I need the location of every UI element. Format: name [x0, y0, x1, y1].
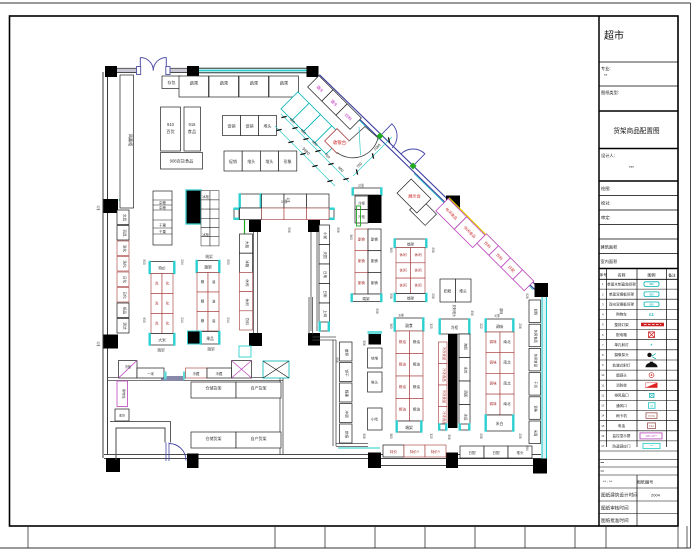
svg-text:100 10**: 100 10**	[645, 434, 657, 438]
svg-text:南北: 南北	[503, 360, 511, 365]
svg-text:特价: 特价	[390, 449, 398, 454]
svg-text:米白: 米白	[496, 421, 504, 426]
svg-text:干果: 干果	[159, 229, 166, 234]
svg-text:284: 284	[525, 445, 529, 451]
svg-text:冰柜: 冰柜	[202, 194, 209, 199]
svg-text:休闲: 休闲	[414, 283, 422, 288]
svg-text:副食: 副食	[358, 237, 366, 242]
svg-text:化: 化	[166, 321, 170, 326]
svg-text:洗化: 洗化	[123, 245, 128, 253]
svg-text:306: 306	[447, 434, 451, 440]
svg-text:***: ***	[629, 165, 634, 170]
svg-text:专业:: 专业:	[601, 65, 611, 72]
svg-text:粮油: 粮油	[413, 407, 421, 412]
svg-text:油: 油	[212, 279, 216, 284]
svg-text:副食: 副食	[358, 280, 366, 285]
svg-text:南北: 南北	[503, 401, 511, 406]
svg-text:冷冻食品: 冷冻食品	[442, 368, 447, 382]
svg-text:214: 214	[226, 317, 230, 323]
svg-text:杂粮: 杂粮	[159, 205, 166, 210]
svg-text:端架: 端架	[157, 348, 165, 353]
svg-text:副食: 副食	[405, 323, 413, 328]
svg-text:形象: 形象	[284, 158, 292, 164]
svg-text:展示台: 展示台	[408, 193, 421, 200]
svg-text:特价: 特价	[158, 266, 166, 271]
svg-text:休闲食品: 休闲食品	[534, 330, 539, 344]
svg-text:206: 206	[518, 323, 522, 329]
svg-text:206: 206	[518, 433, 522, 439]
svg-text:调味: 调味	[489, 360, 497, 365]
svg-text:端架: 端架	[407, 296, 415, 301]
svg-text:单面双搁板货架: 单面双搁板货架	[609, 292, 635, 297]
svg-text:图例: 图例	[648, 272, 656, 278]
svg-text:900: 900	[226, 259, 230, 265]
svg-text:910: 910	[167, 122, 175, 127]
svg-text:洗化: 洗化	[123, 260, 128, 268]
svg-text:绘图:: 绘图:	[601, 185, 611, 192]
svg-text:购物车: 购物车	[122, 389, 127, 399]
svg-text:消防栓: 消防栓	[616, 383, 627, 388]
svg-text:蔬果: 蔬果	[250, 80, 259, 87]
svg-text:小家: 小家	[323, 232, 328, 240]
svg-text:小吃: 小吃	[371, 417, 379, 422]
svg-text:收货: 收货	[119, 413, 125, 418]
svg-text:306: 306	[362, 340, 366, 346]
svg-text:** : **: ** : **	[603, 480, 613, 484]
svg-text:大姐: 大姐	[245, 241, 250, 249]
svg-text:超市: 超市	[604, 29, 624, 42]
svg-text:214: 214	[180, 317, 184, 323]
svg-text:900: 900	[142, 317, 146, 323]
svg-text:206: 206	[431, 247, 435, 253]
svg-text:汤圆: 汤圆	[464, 390, 469, 397]
svg-text:杂粮: 杂粮	[159, 200, 166, 205]
svg-text:洗: 洗	[155, 301, 159, 306]
svg-text:米面: 米面	[534, 430, 539, 437]
svg-text:908百货食品: 908百货食品	[170, 158, 194, 165]
svg-text:10: 10	[601, 373, 605, 377]
svg-text:休闲: 休闲	[399, 267, 407, 272]
svg-text:TEL: TEL	[649, 424, 655, 428]
svg-text:蔬果: 蔬果	[220, 80, 229, 87]
svg-text:轨道式射灯: 轨道式射灯	[613, 362, 631, 367]
svg-text:粮油: 粮油	[399, 339, 407, 344]
svg-text:促销: 促销	[229, 158, 237, 164]
svg-text:££: ££	[649, 312, 655, 317]
svg-text:单面木制直角货架: 单面木制直角货架	[607, 281, 636, 286]
svg-text:配电箱: 配电箱	[616, 332, 627, 337]
svg-text:360: 360	[349, 234, 353, 240]
svg-text:906: 906	[336, 227, 340, 233]
svg-text:206: 206	[431, 293, 435, 299]
svg-text:222: 222	[479, 323, 483, 329]
svg-text:休闲: 休闲	[245, 299, 250, 307]
svg-text:冰品: 冰品	[464, 414, 469, 421]
svg-text:900: 900	[649, 282, 654, 286]
svg-text:化: 化	[166, 301, 170, 306]
svg-text:图纸建筑设计时间: 图纸建筑设计时间	[601, 492, 638, 499]
svg-text:烟感头: 烟感头	[616, 372, 627, 377]
svg-text:洗: 洗	[155, 281, 159, 286]
svg-text:306: 306	[362, 433, 366, 439]
svg-text:仓储货架: 仓储货架	[206, 435, 222, 441]
svg-text:图纸类型:: 图纸类型:	[601, 89, 619, 96]
svg-text:冷冻食品: 冷冻食品	[442, 411, 447, 425]
svg-text:百货: 百货	[166, 128, 174, 135]
svg-text:2排: 2排	[96, 206, 101, 212]
svg-text:饮料: 饮料	[245, 318, 250, 326]
svg-text:休闲: 休闲	[399, 252, 407, 257]
svg-text:粮: 粮	[201, 279, 205, 284]
svg-text:干货: 干货	[534, 381, 539, 388]
svg-text:日用: 日用	[323, 290, 328, 298]
svg-text:促销: 促销	[246, 123, 254, 129]
svg-text:冷柜: 冷柜	[125, 364, 132, 369]
svg-text:926: 926	[525, 293, 529, 299]
svg-text:副食: 副食	[371, 258, 379, 263]
svg-text:堆头: 堆头	[459, 289, 467, 294]
svg-text:堆头: 堆头	[247, 158, 255, 164]
svg-text:上网: 上网	[323, 310, 328, 318]
svg-text:果品: 果品	[206, 336, 214, 341]
svg-text:900: 900	[649, 292, 654, 296]
svg-text:图纸审核时间: 图纸审核时间	[601, 505, 629, 512]
svg-text:✶: ✶	[650, 343, 653, 347]
svg-text:大米: 大米	[158, 338, 166, 343]
svg-text:地堆: 地堆	[371, 356, 379, 361]
svg-text:图纸编号: 图纸编号	[637, 479, 654, 486]
svg-text:排风扇口: 排风扇口	[614, 393, 629, 398]
svg-text:特价Y: 特价Y	[431, 449, 441, 454]
svg-text:图纸批准时间: 图纸批准时间	[601, 517, 629, 524]
svg-text:干果: 干果	[159, 223, 166, 228]
svg-text:一米: 一米	[147, 371, 154, 376]
svg-text:副食: 副食	[371, 237, 379, 242]
svg-text:1排: 1排	[286, 198, 291, 204]
svg-text:3排: 3排	[398, 313, 404, 318]
svg-text:日化: 日化	[123, 291, 128, 299]
svg-text:14: 14	[601, 414, 605, 418]
svg-text:325: 325	[429, 323, 433, 329]
svg-text:日配: 日配	[492, 450, 500, 455]
svg-text:906: 906	[389, 293, 393, 299]
svg-text:堆头: 堆头	[264, 123, 272, 129]
svg-text:端架: 端架	[362, 296, 370, 301]
svg-text:17: 17	[601, 444, 605, 448]
svg-text:名称: 名称	[618, 272, 626, 278]
svg-text:休闲: 休闲	[414, 267, 422, 272]
svg-text:12: 12	[601, 394, 605, 398]
svg-text:玩具: 玩具	[123, 229, 128, 237]
svg-text:单孔射灯: 单孔射灯	[614, 342, 629, 347]
svg-text:监控显示屏: 监控显示屏	[613, 433, 631, 438]
svg-text:冷藏: 冷藏	[193, 371, 200, 376]
svg-text:休闲: 休闲	[414, 252, 422, 257]
svg-text:调味: 调味	[496, 324, 504, 329]
svg-text:调味: 调味	[534, 406, 539, 413]
svg-text:冷柜: 冷柜	[358, 214, 365, 219]
svg-text:堆头: 堆头	[516, 450, 524, 455]
svg-text:水饺: 水饺	[464, 367, 469, 374]
svg-text:清洁: 清洁	[123, 322, 128, 330]
svg-text:蔬果: 蔬果	[190, 80, 199, 87]
svg-text:端架: 端架	[405, 425, 413, 430]
svg-text:货架商品配置图: 货架商品配置图	[613, 126, 660, 135]
svg-text:洗: 洗	[155, 321, 159, 326]
svg-text:食品: 食品	[188, 128, 196, 135]
svg-text:906: 906	[335, 357, 339, 363]
svg-text:906: 906	[287, 227, 291, 233]
svg-text:奶粉: 奶粉	[534, 309, 539, 316]
svg-text:化: 化	[166, 281, 170, 286]
svg-text:234: 234	[180, 259, 184, 265]
svg-text:通风口: 通风口	[616, 403, 627, 408]
svg-text:奶粉堆头: 奶粉堆头	[452, 305, 457, 319]
svg-text:206: 206	[479, 433, 483, 439]
svg-text:自产货架: 自产货架	[251, 385, 267, 391]
svg-text:副食: 副食	[371, 280, 379, 285]
svg-text:冰箱: 冰箱	[245, 260, 250, 268]
svg-text:休闲: 休闲	[399, 283, 407, 288]
svg-text:仓储货架: 仓储货架	[206, 385, 222, 391]
svg-text:冷冻食品: 冷冻食品	[442, 347, 447, 361]
svg-text:天国: 天国	[323, 251, 328, 259]
svg-text:刷卡机: 刷卡机	[616, 413, 627, 418]
svg-text:纸品: 纸品	[123, 307, 128, 315]
svg-text:烘焙: 烘焙	[345, 431, 350, 439]
svg-text:电话: 电话	[618, 423, 626, 428]
svg-text:粮油: 粮油	[413, 384, 421, 389]
svg-text:文具: 文具	[123, 214, 128, 222]
svg-text:900: 900	[142, 259, 146, 265]
svg-text:堆头: 堆头	[371, 380, 379, 385]
svg-text:备注: 备注	[668, 273, 676, 278]
svg-text:存包: 存包	[168, 79, 176, 85]
svg-text:购物车: 购物车	[616, 312, 627, 317]
svg-text:粮油: 粮油	[399, 362, 407, 367]
svg-text:油: 油	[212, 318, 216, 323]
svg-text:端架: 端架	[407, 242, 415, 247]
svg-text:饼干: 饼干	[345, 369, 350, 377]
svg-text:室内面积: 室内面积	[601, 258, 618, 265]
svg-text:360: 360	[389, 247, 393, 253]
svg-text:冷藏: 冷藏	[216, 371, 223, 376]
svg-text:端架: 端架	[207, 347, 215, 352]
svg-text:**: **	[604, 73, 608, 78]
svg-text:16: 16	[601, 434, 605, 438]
svg-text:促销: 促销	[228, 123, 236, 129]
svg-text:325: 325	[429, 433, 433, 439]
svg-text:风幕柜: 风幕柜	[127, 134, 134, 147]
svg-text:摄像探头: 摄像探头	[614, 352, 629, 357]
svg-text:906: 906	[375, 308, 379, 314]
svg-text:收银台: 收银台	[333, 139, 347, 146]
svg-text:冰柜: 冰柜	[202, 232, 209, 237]
svg-text:散称: 散称	[345, 349, 350, 357]
svg-text:2排: 2排	[358, 183, 364, 188]
svg-text:900: 900	[649, 302, 654, 306]
svg-text:建筑面积: 建筑面积	[601, 244, 618, 251]
svg-text:特价Y: 特价Y	[410, 449, 420, 454]
svg-text:13: 13	[601, 404, 605, 408]
svg-text:休闲: 休闲	[245, 279, 250, 287]
svg-text:日化: 日化	[123, 276, 128, 284]
svg-text:端架: 端架	[205, 254, 213, 259]
svg-text:日配: 日配	[468, 450, 476, 455]
svg-text:冷冻食品: 冷冻食品	[442, 390, 447, 404]
svg-text:调味: 调味	[499, 308, 504, 315]
svg-text:粮油: 粮油	[413, 339, 421, 344]
svg-text:2排: 2排	[96, 342, 101, 348]
svg-text:2004: 2004	[651, 493, 661, 498]
svg-text:防盗感应门: 防盗感应门	[613, 443, 631, 448]
svg-text:360: 360	[389, 323, 393, 329]
svg-text:海鲜: 海鲜	[464, 343, 469, 350]
svg-text:油: 油	[212, 299, 216, 304]
svg-text:双向双搁板货架: 双向双搁板货架	[609, 302, 635, 307]
svg-text:360: 360	[389, 433, 393, 439]
svg-text:端架: 端架	[204, 265, 212, 270]
svg-text:设计人:: 设计人:	[601, 152, 615, 159]
svg-text:冷柜: 冷柜	[451, 325, 459, 330]
svg-text:306: 306	[470, 310, 474, 316]
svg-text:调味: 调味	[489, 339, 497, 344]
svg-text:粮油: 粮油	[413, 362, 421, 367]
svg-text:15: 15	[601, 424, 605, 428]
svg-text:审定:: 审定:	[601, 214, 611, 221]
svg-text:自产货架: 自产货架	[251, 435, 267, 441]
svg-text:副食: 副食	[358, 258, 366, 263]
svg-text:粮油: 粮油	[399, 384, 407, 389]
svg-text:粮油: 粮油	[399, 407, 407, 412]
svg-text:日用: 日用	[323, 271, 328, 279]
svg-text:整排灯架: 整排灯架	[614, 322, 629, 327]
svg-text:休闲食品: 休闲食品	[534, 354, 539, 368]
svg-text:11: 11	[601, 383, 604, 387]
svg-text:粮: 粮	[201, 299, 205, 304]
svg-text:冲调: 冲调	[345, 410, 350, 418]
svg-text:POS: POS	[648, 414, 654, 418]
svg-text:调味: 调味	[489, 401, 497, 406]
svg-text:南北: 南北	[503, 380, 511, 385]
svg-text:南北: 南北	[503, 339, 511, 344]
svg-text:冷柜: 冷柜	[358, 201, 365, 206]
svg-text:粮: 粮	[201, 318, 205, 323]
svg-text:蔬果: 蔬果	[280, 80, 289, 87]
svg-text:糖果: 糖果	[345, 390, 350, 398]
svg-text:序号: 序号	[600, 272, 608, 277]
svg-text:奶粉: 奶粉	[444, 289, 452, 294]
svg-text:校对:: 校对:	[601, 200, 611, 207]
svg-text:915: 915	[189, 122, 197, 127]
svg-text:调味: 调味	[489, 380, 497, 385]
svg-text:堆头: 堆头	[265, 158, 273, 164]
